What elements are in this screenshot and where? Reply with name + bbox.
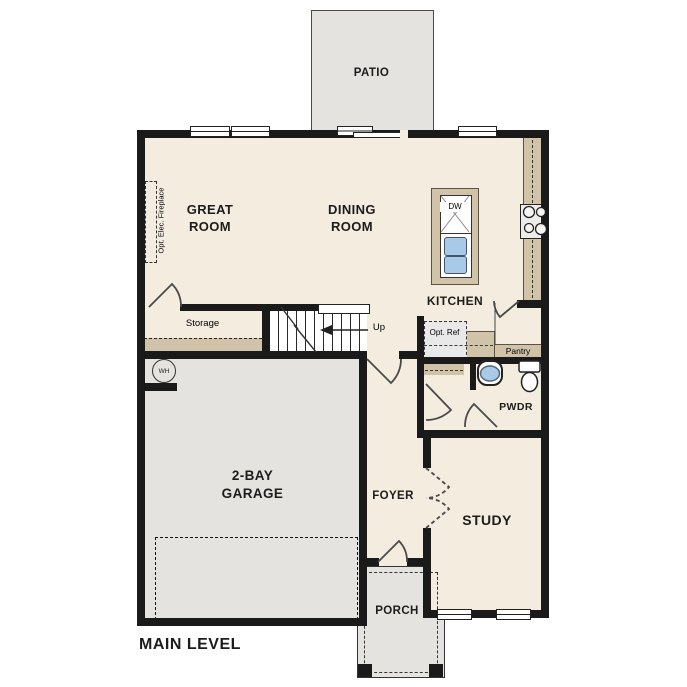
- stair-break-line: [281, 307, 316, 352]
- symbols-overlay: [0, 0, 687, 687]
- powder-room-label: PWDR: [494, 401, 538, 415]
- storage-label: Storage: [150, 318, 255, 329]
- stove-burners: [524, 207, 547, 235]
- optional-refrigerator-label: Opt. Ref: [429, 327, 460, 339]
- study-label: STUDY: [452, 511, 522, 529]
- stairs-up-label: Up: [369, 322, 389, 333]
- door-arc: [149, 284, 181, 307]
- pantry-label: Pantry: [495, 346, 541, 356]
- door-arc: [465, 404, 497, 427]
- optional-fireplace-label: Opt. Elec. Fireplace: [157, 166, 170, 276]
- stairs-up-arrowhead: [320, 325, 332, 335]
- door-arc: [367, 359, 401, 383]
- main-level-title: MAIN LEVEL: [139, 635, 269, 656]
- french-door-arc: [426, 498, 449, 528]
- kitchen-label: KITCHEN: [410, 294, 500, 310]
- dishwasher-label: DW: [440, 202, 470, 212]
- porch-label: PORCH: [367, 604, 427, 619]
- toilet-tank: [519, 361, 540, 372]
- patio-label: PATIO: [311, 66, 432, 81]
- great-room-label: GREAT ROOM: [172, 202, 248, 236]
- garage-label: 2-BAY GARAGE: [205, 467, 300, 502]
- powder-sink-basin: [481, 366, 500, 381]
- foyer-label: FOYER: [363, 489, 423, 504]
- floor-plan: WH: [0, 0, 687, 687]
- toilet-bowl: [522, 373, 538, 392]
- dining-room-label: DINING ROOM: [314, 202, 390, 236]
- french-door-arc: [426, 468, 449, 498]
- door-arc: [378, 541, 407, 562]
- door-arc: [426, 384, 451, 420]
